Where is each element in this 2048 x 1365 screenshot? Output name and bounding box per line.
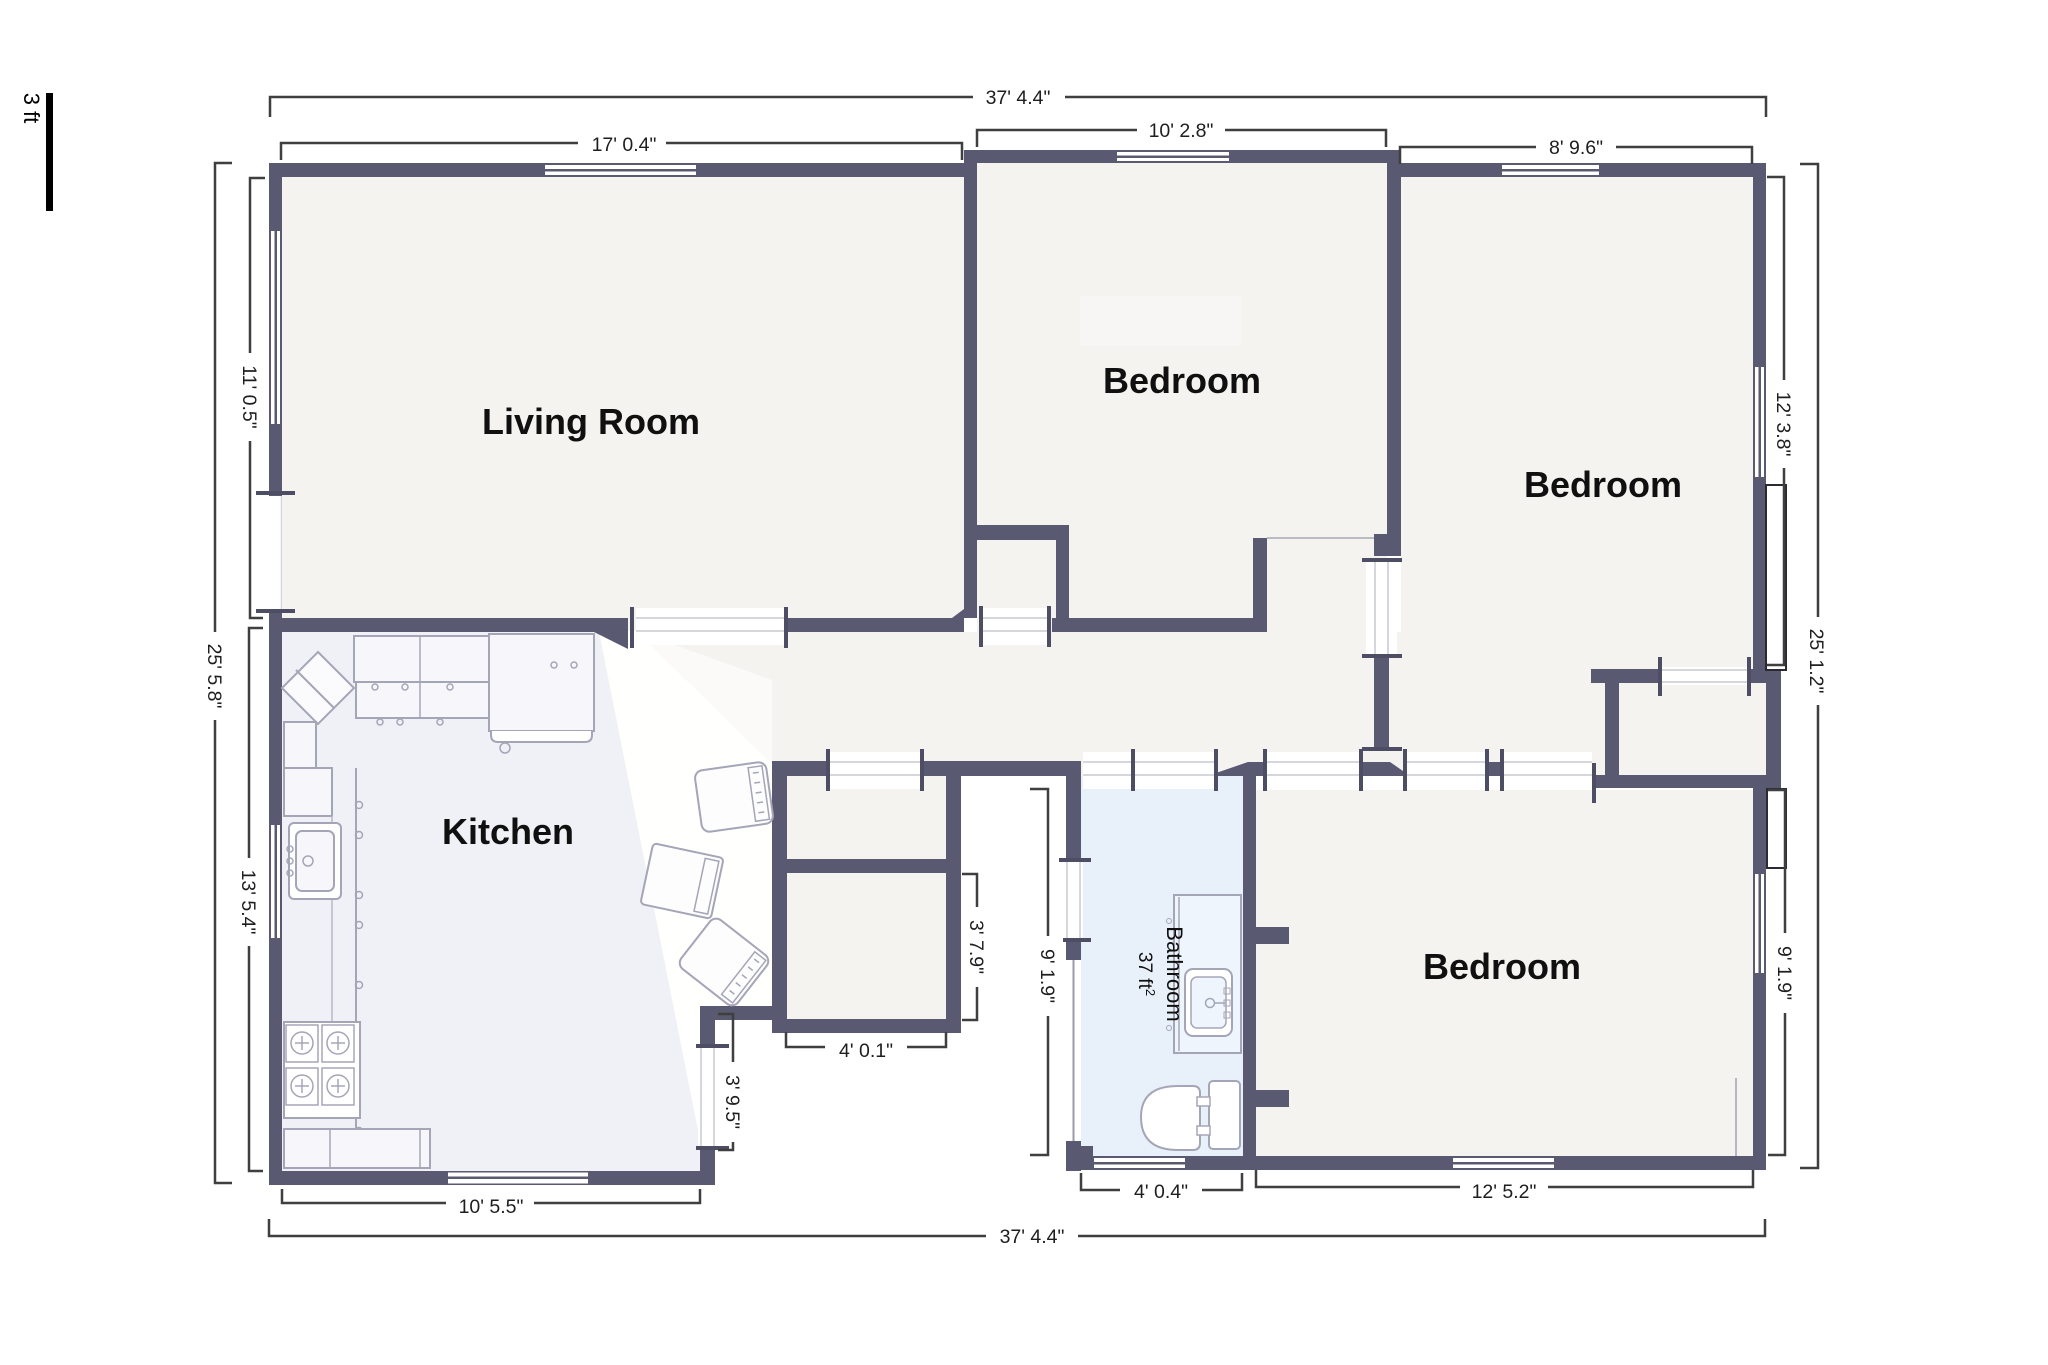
svg-text:Bedroom: Bedroom: [1524, 464, 1682, 505]
svg-text:4' 0.1": 4' 0.1": [839, 1040, 893, 1062]
svg-text:17' 0.4": 17' 0.4": [592, 134, 657, 156]
svg-text:25' 1.2": 25' 1.2": [1805, 629, 1827, 694]
svg-text:37' 4.4": 37' 4.4": [1000, 1226, 1065, 1248]
svg-text:Bedroom: Bedroom: [1423, 946, 1581, 987]
svg-text:10' 5.5": 10' 5.5": [459, 1196, 524, 1218]
svg-text:3' 9.5": 3' 9.5": [721, 1075, 743, 1129]
svg-text:9' 1.9": 9' 1.9": [1773, 946, 1795, 1000]
svg-text:37' 4.4": 37' 4.4": [986, 87, 1051, 109]
svg-text:4' 0.4": 4' 0.4": [1134, 1181, 1188, 1203]
svg-text:Living Room: Living Room: [482, 401, 700, 442]
svg-text:12' 3.8": 12' 3.8": [1772, 392, 1794, 457]
svg-text:3' 7.9": 3' 7.9": [965, 920, 987, 974]
svg-text:3 ft: 3 ft: [19, 93, 44, 124]
svg-text:Kitchen: Kitchen: [442, 811, 574, 852]
svg-text:10' 2.8": 10' 2.8": [1149, 120, 1214, 142]
svg-text:Bathroom: Bathroom: [1162, 926, 1187, 1021]
svg-text:25' 5.8": 25' 5.8": [203, 644, 225, 709]
svg-text:8' 9.6": 8' 9.6": [1549, 137, 1603, 159]
svg-text:12' 5.2": 12' 5.2": [1472, 1181, 1537, 1203]
svg-text:9' 1.9": 9' 1.9": [1036, 949, 1058, 1003]
svg-text:11' 0.5": 11' 0.5": [238, 365, 260, 428]
svg-text:13' 5.4": 13' 5.4": [237, 870, 259, 935]
svg-text:Bedroom: Bedroom: [1103, 360, 1261, 401]
